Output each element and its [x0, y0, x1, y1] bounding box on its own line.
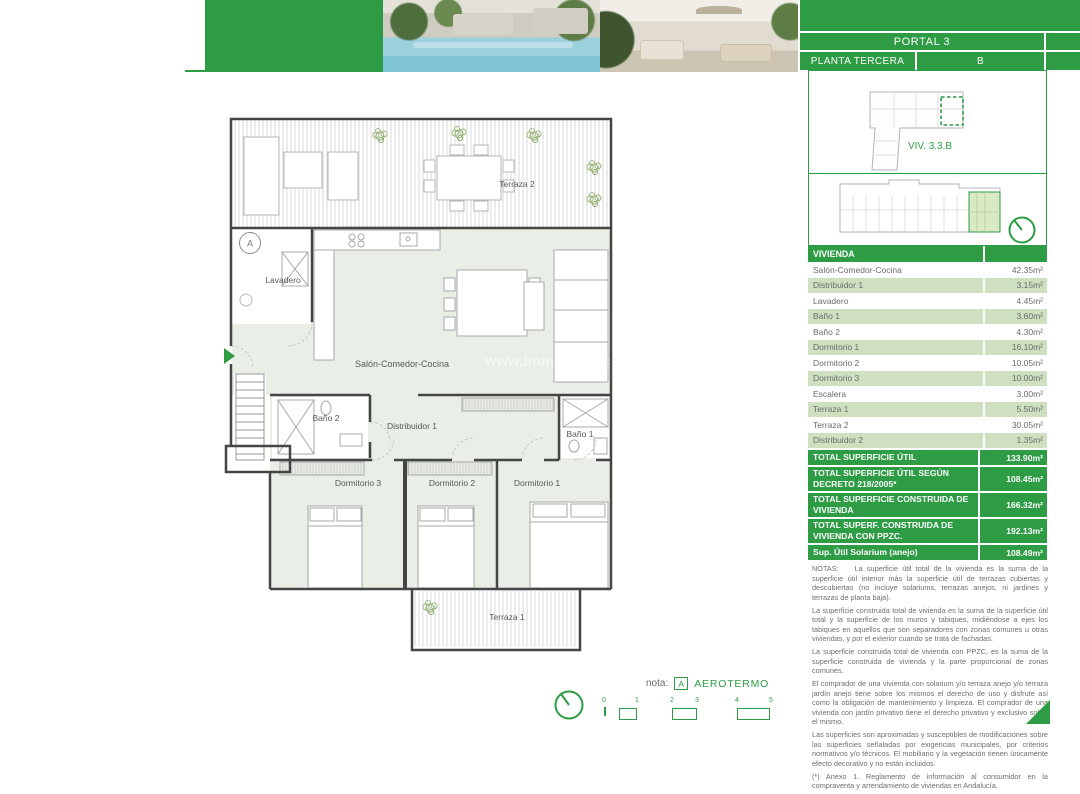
room-label-dorm1: Dormitorio 1: [514, 478, 561, 488]
total-value: 133.90m²: [978, 450, 1047, 465]
building-shape: [453, 14, 513, 34]
scale-tick-label: 5: [769, 697, 773, 704]
row-label: Terraza 1: [808, 402, 983, 418]
stairs-floor: [234, 374, 266, 462]
compass-icon: [549, 686, 589, 720]
note-paragraph: Las superficies son aproximadas y suscep…: [812, 730, 1048, 769]
table-row: Lavadero4.45m²: [808, 293, 1047, 309]
table-row: Baño 13.60m²: [808, 309, 1047, 325]
beds: [308, 502, 608, 588]
row-label: Terraza 2: [808, 417, 983, 433]
scale-tick-label: 2: [670, 697, 674, 704]
portal-title: PORTAL 3: [800, 33, 1044, 50]
scale-segment: [672, 708, 697, 720]
row-label: Escalera: [808, 386, 983, 402]
total-value: 108.49m²: [978, 545, 1047, 560]
row-value: 30.05m²: [983, 417, 1047, 433]
total-row: TOTAL SUPERFICIE ÚTIL SEGÚN DECRETO 218/…: [808, 467, 1047, 491]
row-value: 10.00m²: [983, 371, 1047, 387]
scale-tick-label: 4: [735, 697, 739, 704]
pool-edge: [413, 42, 573, 48]
wardrobe: [408, 462, 492, 475]
bano2-floor: [272, 397, 368, 458]
room-label-terraza1: Terraza 1: [489, 612, 525, 622]
room-label-salon: Salón-Comedor-Cocina: [355, 359, 449, 369]
row-value: 4.45m²: [983, 293, 1047, 309]
furniture-shape: [720, 44, 772, 62]
svg-text:A: A: [247, 239, 253, 249]
room-label-terraza2: Terraza 2: [499, 179, 535, 189]
wardrobe: [462, 398, 554, 411]
room-label-dorm3: Dormitorio 3: [335, 478, 382, 488]
row-label: Baño 1: [808, 309, 983, 325]
wardrobe: [280, 462, 364, 475]
table-row: Distribuidor 21.35m²: [808, 433, 1047, 449]
table-row: Salón-Comedor-Cocina42.35m²: [808, 262, 1047, 278]
portal-row-spacer: [1046, 33, 1080, 50]
row-value: 4.30m²: [983, 324, 1047, 340]
table-title: VIVIENDA: [808, 246, 983, 262]
room-label-lavadero: Lavadero: [265, 275, 301, 285]
fixture: [240, 294, 252, 306]
keyplan-strip-sketch: [809, 174, 1046, 244]
total-label: Sup. Útil Solarium (anejo): [808, 545, 978, 560]
header-green-band: [800, 0, 1080, 31]
table-row: Terraza 230.05m²: [808, 417, 1047, 433]
row-value: 3.15m²: [983, 278, 1047, 294]
scale-tick-label: 1: [635, 697, 639, 704]
table-row: Dormitorio 310.00m²: [808, 371, 1047, 387]
total-label: TOTAL SUPERFICIE ÚTIL SEGÚN DECRETO 218/…: [808, 467, 978, 491]
room-label-dorm2: Dormitorio 2: [429, 478, 476, 488]
nota-value: AEROTERMO: [694, 678, 769, 690]
note-paragraph: La superficie construida total de vivien…: [812, 606, 1048, 645]
photo-pool: [383, 0, 600, 72]
row-value: 16.10m²: [983, 340, 1047, 356]
keyplan-panel: VIV. 3.3.B: [808, 70, 1047, 246]
row-value: 5.50m²: [983, 402, 1047, 418]
planta-row-spacer: [1046, 52, 1080, 70]
nota-marker-box: A: [674, 677, 688, 690]
watermark: www.immo-toro.c: [484, 353, 610, 370]
letter-label: B: [977, 56, 984, 67]
table-header-row: VIVIENDA: [808, 246, 1047, 262]
total-row: TOTAL SUPERFICIE CONSTRUIDA DE VIVIENDA1…: [808, 493, 1047, 517]
total-label: TOTAL SUPERFICIE CONSTRUIDA DE VIVIENDA: [808, 493, 978, 517]
table-row: Distribuidor 13.15m²: [808, 278, 1047, 294]
nota-label: nota:: [646, 678, 668, 689]
row-label: Distribuidor 2: [808, 433, 983, 449]
scale-segment: [619, 708, 637, 720]
row-label: Dormitorio 3: [808, 371, 983, 387]
unit-label: VIV. 3.3.B: [908, 141, 952, 152]
total-value: 192.13m²: [978, 519, 1047, 543]
compass-icon: [1010, 218, 1035, 243]
row-label: Lavadero: [808, 293, 983, 309]
note-text: La superficie útil total de la vivienda …: [812, 564, 1048, 602]
nota-legend: nota: A AEROTERMO: [646, 677, 769, 690]
floor-plan: A www.immo-toro.c Terraza 2 Lavadero Sal…: [222, 112, 622, 657]
note-paragraph: NOTAS:La superficie útil total de la viv…: [812, 564, 1048, 603]
total-label: TOTAL SUPERFICIE ÚTIL: [808, 450, 978, 465]
scale-tick: [604, 707, 606, 716]
photo-terrace: [600, 0, 798, 72]
row-value: 10.05m²: [983, 355, 1047, 371]
table-row: Dormitorio 210.05m²: [808, 355, 1047, 371]
portal-label: PORTAL 3: [894, 36, 951, 48]
total-row: TOTAL SUPERF. CONSTRUIDA DE VIVIENDA CON…: [808, 519, 1047, 543]
row-label: Distribuidor 1: [808, 278, 983, 294]
letter-cell: B: [917, 52, 1044, 70]
row-value: 3.00m²: [983, 386, 1047, 402]
note-paragraph: (*) Anexo 1. Reglamento de información a…: [812, 772, 1048, 791]
brand-color-block: [205, 0, 383, 72]
aerotermo-marker: A: [240, 233, 261, 254]
row-value: 42.35m²: [983, 262, 1047, 278]
planta-cell: PLANTA TERCERA: [800, 52, 915, 70]
note-paragraph: La superficie construida total de vivien…: [812, 647, 1048, 676]
room-label-bano1: Baño 1: [567, 429, 594, 439]
umbrella-icon: [696, 6, 742, 14]
table-row: Baño 24.30m²: [808, 324, 1047, 340]
total-label: TOTAL SUPERF. CONSTRUIDA DE VIVIENDA CON…: [808, 519, 978, 543]
table-row: Terraza 15.50m²: [808, 402, 1047, 418]
table-row: Escalera3.00m²: [808, 386, 1047, 402]
table-row: Dormitorio 116.10m²: [808, 340, 1047, 356]
row-label: Dormitorio 2: [808, 355, 983, 371]
furniture-shape: [640, 40, 684, 60]
table-title-value-cell: [983, 246, 1047, 262]
scale-segment: [737, 708, 770, 720]
planta-label: PLANTA TERCERA: [811, 56, 905, 67]
row-label: Dormitorio 1: [808, 340, 983, 356]
brand-underline: [185, 70, 383, 72]
row-label: Baño 2: [808, 324, 983, 340]
scale-tick-label: 3: [695, 697, 699, 704]
row-label: Salón-Comedor-Cocina: [808, 262, 983, 278]
total-row: Sup. Útil Solarium (anejo)108.49m²: [808, 545, 1047, 560]
keyplan-floor-sketch: VIV. 3.3.B: [809, 71, 1046, 172]
notes-label: NOTAS:: [812, 564, 839, 573]
total-value: 108.45m²: [978, 467, 1047, 491]
area-table: VIVIENDA Salón-Comedor-Cocina42.35m² Dis…: [808, 246, 1047, 560]
total-row: TOTAL SUPERFICIE ÚTIL133.90m²: [808, 450, 1047, 465]
row-value: 3.60m²: [983, 309, 1047, 325]
corner-triangle: [1026, 700, 1050, 724]
total-value: 166.32m²: [978, 493, 1047, 517]
room-label-distribuidor1: Distribuidor 1: [387, 421, 437, 431]
scale-tick-label: 0: [602, 697, 606, 704]
row-value: 1.35m²: [983, 433, 1047, 449]
notes-block: NOTAS:La superficie útil total de la viv…: [812, 564, 1048, 794]
building-shape: [533, 8, 588, 34]
room-label-bano2: Baño 2: [313, 413, 340, 423]
